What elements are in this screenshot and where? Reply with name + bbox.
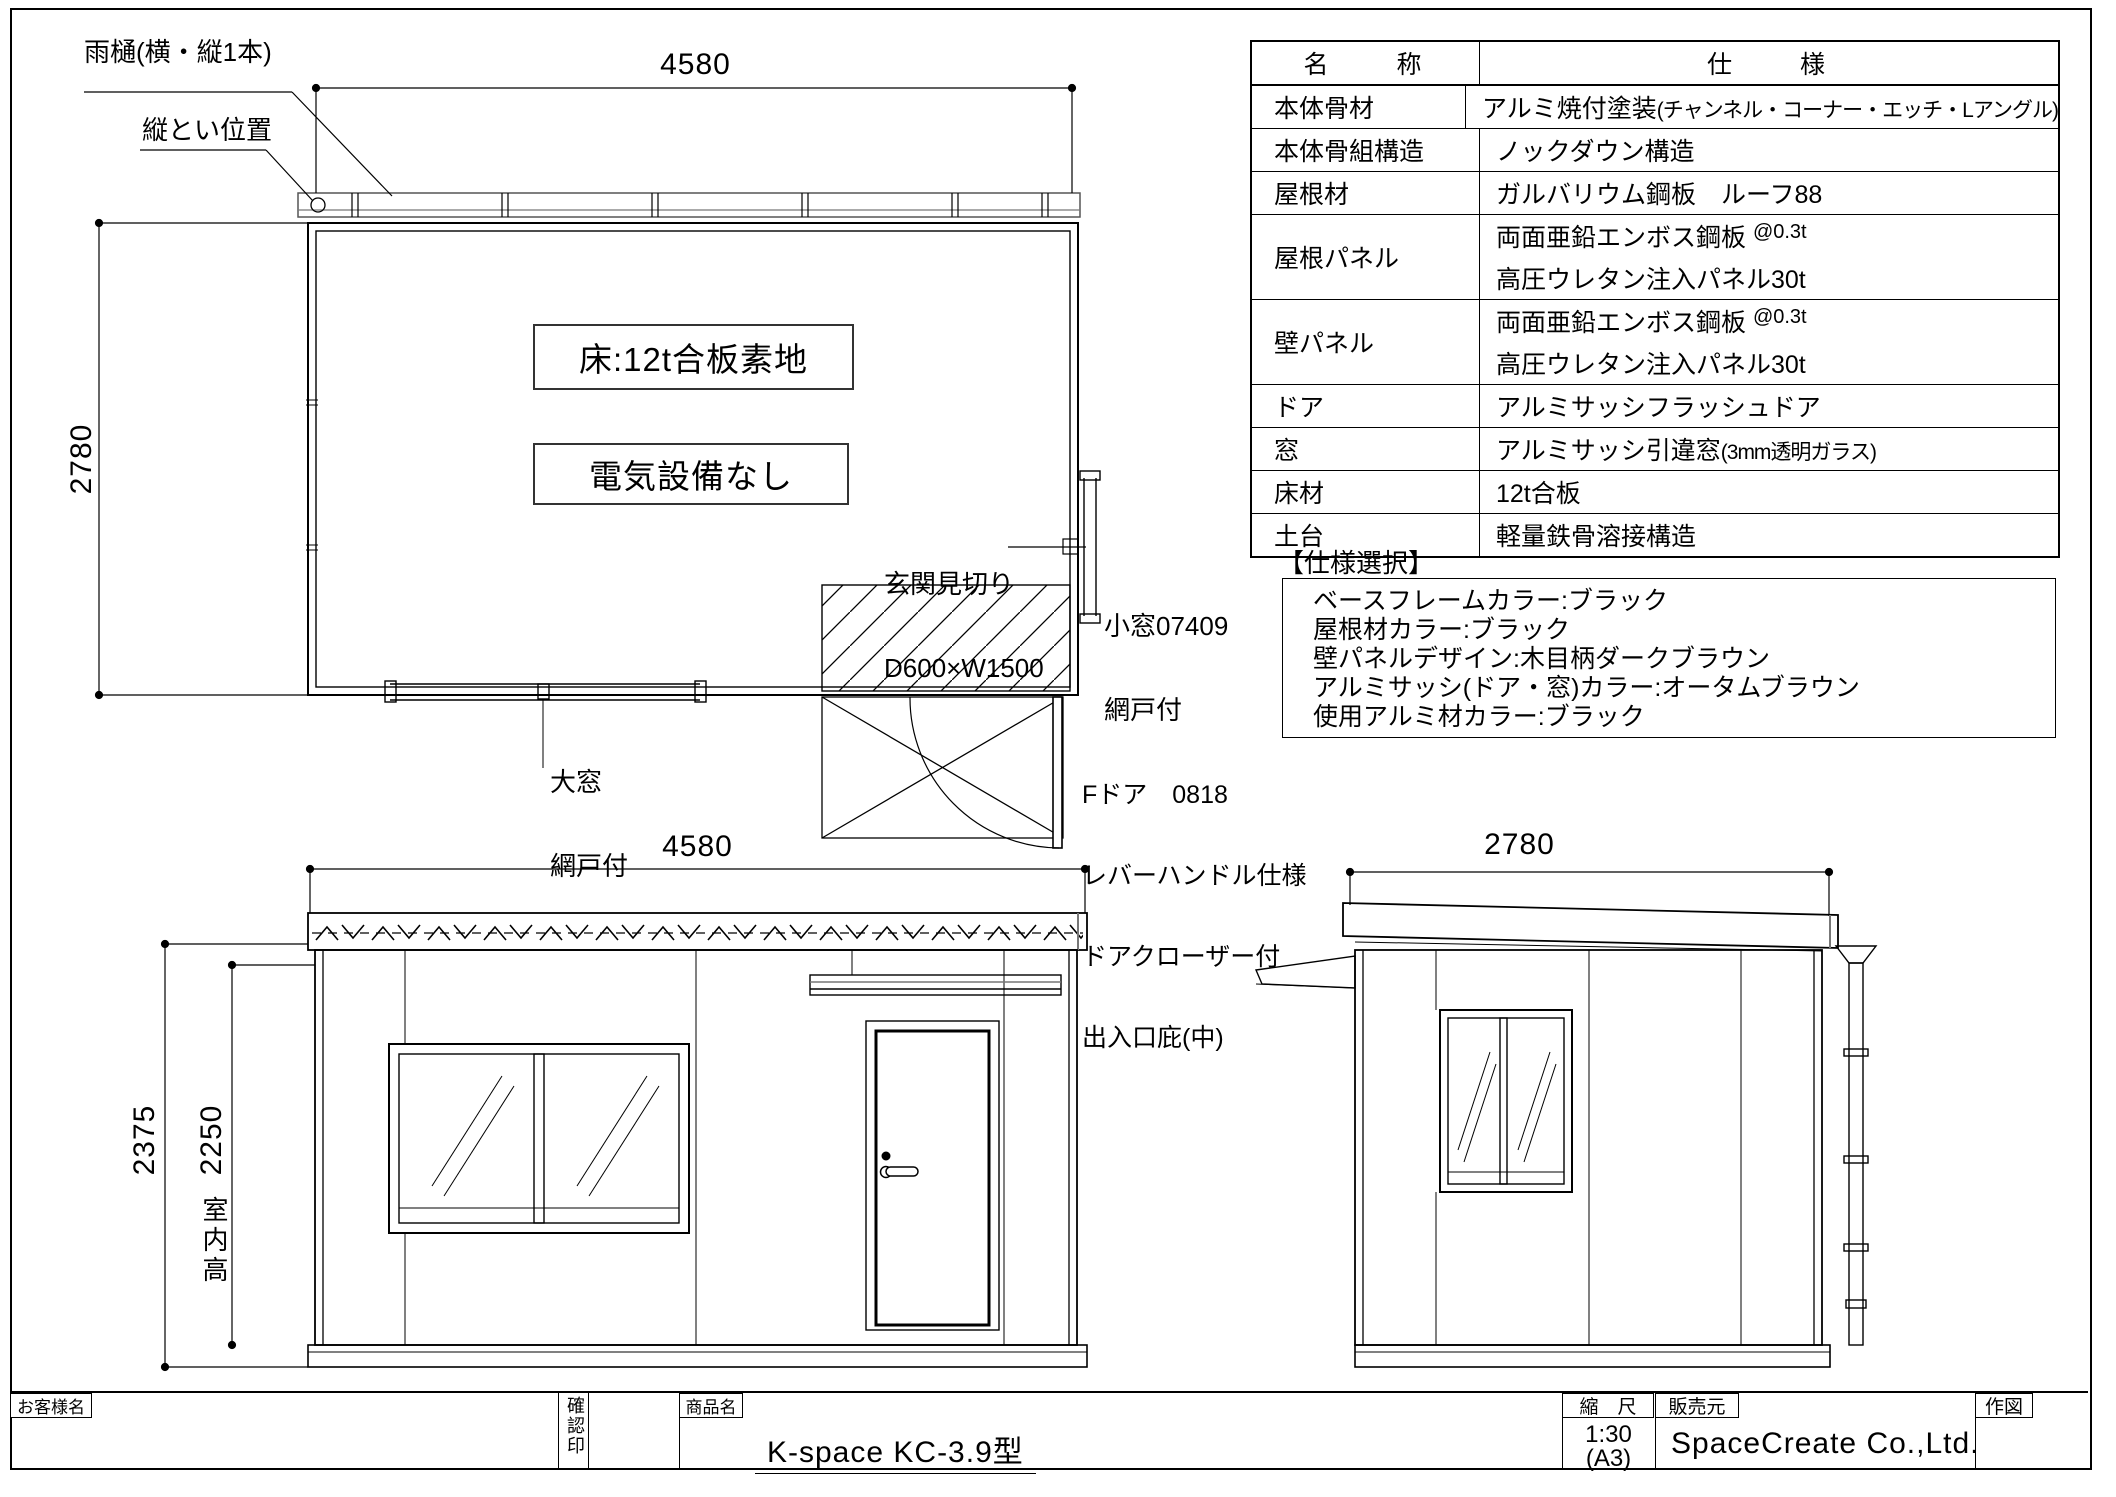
spec-select-item: 壁パネルデザイン:木目柄ダークブラウン [1313,645,2055,674]
spec-header-row: 名 称 仕 様 [1252,42,2058,85]
floor-note-text: 床:12t合板素地 [579,333,808,381]
spec-select-box: ベースフレームカラー:ブラック 屋根材カラー:ブラック 壁パネルデザイン:木目柄… [1282,578,2056,738]
front-width-dim: 4580 [650,830,745,864]
plan-width-dim: 4580 [648,48,743,82]
plan-gutter-rail [298,193,1080,217]
electric-note-box: 電気設備なし [533,443,849,505]
front-door-canopy [810,975,1061,995]
front-base [308,1345,1087,1367]
side-elevation [1256,869,1876,1368]
drawing-sheet: 雨樋(横・縦1本) 縦とい位置 4580 2780 床:12t合板素地 電気設備… [0,0,2116,1497]
side-roof [1343,903,1838,951]
spec-row: 本体骨組構造 ノックダウン構造 [1252,128,2058,171]
customer-name-label: お客様名 [10,1393,92,1418]
product-name-label: 商品名 [679,1393,743,1418]
plan-leaders [84,92,392,201]
spec-select-item: 使用アルミ材カラー:ブラック [1313,703,2055,732]
spec-row: 本体骨材 アルミ焼付塗装(チャンネル・コーナー・エッチ・Lアングル) [1252,85,2058,128]
side-depth-dim: 2780 [1472,828,1567,862]
spec-table: 名 称 仕 様 本体骨材 アルミ焼付塗装(チャンネル・コーナー・エッチ・Lアング… [1250,40,2060,558]
front-roof [308,913,1087,950]
side-base [1355,1345,1830,1367]
scale-label: 縮 尺 [1562,1393,1654,1418]
front-elevation [162,866,1089,1371]
seller-name: SpaceCreate Co.,Ltd. [1671,1427,1980,1461]
floor-note-box: 床:12t合板素地 [533,324,854,390]
side-downspout [1836,946,1876,1345]
spec-select-item: ベースフレームカラー:ブラック [1313,587,2055,616]
spec-select-item: 屋根材カラー:ブラック [1313,616,2055,645]
gutter-label: 雨樋(横・縦1本) [84,38,272,66]
door-peephole [882,1152,890,1160]
interior-height-label: 室内高 [196,1196,233,1316]
product-name: K-space KC-3.9型 [755,1427,1036,1474]
spec-row: 窓 アルミサッシ引違窓(3mm透明ガラス) [1252,427,2058,470]
spec-row: ドア アルミサッシフラッシュドア [1252,384,2058,427]
electric-note-text: 電気設備なし [589,450,793,498]
large-window-label: 大窓 網戸付 [550,712,628,936]
front-interior-height-dim: 2250 [195,1098,225,1182]
scale-paper-size: (A3) [1562,1445,1655,1473]
spec-row: 壁パネル 両面亜鉛エンボス鋼板 @0.3t 高圧ウレタン注入パネル30t [1252,299,2058,384]
title-divider [558,1393,559,1470]
side-wall [1355,950,1822,1345]
seller-label: 販売元 [1655,1393,1739,1418]
side-window [1440,1010,1572,1192]
spec-header-name: 名 称 [1252,42,1480,84]
front-door-label: Fドア 0818 レバーハンドル仕様 ドアクローザー付 出入口庇(中) [1082,728,1307,1106]
downspout-position-label: 縦とい位置 [142,116,272,144]
stamp-label: 確認印 [560,1396,588,1468]
front-window-glass-marks [432,1076,659,1196]
plan-depth-dim: 2780 [65,417,95,501]
spec-select-item: アルミサッシ(ドア・窓)カラー:オータムブラウン [1313,674,2055,703]
title-divider [588,1393,589,1470]
entrance-trim-label: 玄関見切り D600×W1500 [884,514,1044,738]
front-window [389,1044,689,1233]
spec-header-spec: 仕 様 [1707,45,1831,81]
front-wall [315,950,1077,1345]
spec-select-title: 【仕様選択】 [1278,543,1434,580]
door-lever-handle [881,1167,919,1178]
front-total-height-dim: 2375 [128,1098,158,1182]
spec-row: 床材 12t合板 [1252,470,2058,513]
front-door [866,1021,999,1330]
drawn-by-label: 作図 [1975,1393,2033,1418]
spec-row: 屋根パネル 両面亜鉛エンボス鋼板 @0.3t 高圧ウレタン注入パネル30t [1252,214,2058,299]
spec-row: 屋根材 ガルバリウム鋼板 ルーフ88 [1252,171,2058,214]
title-block: お客様名 確認印 商品名 K-space KC-3.9型 縮 尺 1:30 (A… [10,1391,2088,1470]
